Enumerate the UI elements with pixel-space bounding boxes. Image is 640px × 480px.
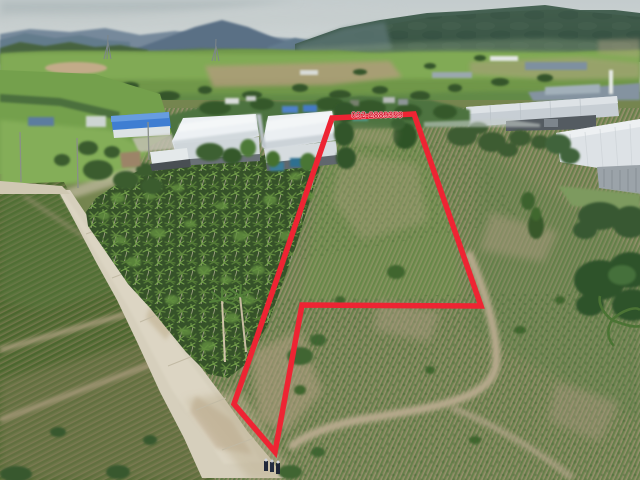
- svg-text:092-2889359: 092-2889359: [351, 110, 403, 120]
